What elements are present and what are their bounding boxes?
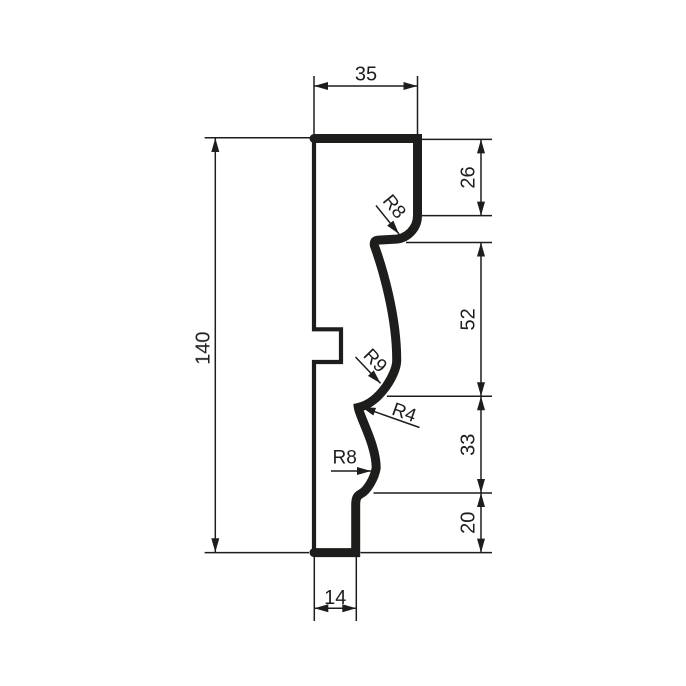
svg-text:14: 14 [324, 587, 346, 609]
svg-text:140: 140 [193, 332, 215, 365]
svg-text:R8: R8 [333, 447, 357, 468]
svg-text:R9: R9 [359, 345, 391, 377]
svg-text:35: 35 [355, 64, 377, 86]
svg-text:R8: R8 [378, 191, 410, 223]
svg-text:R4: R4 [389, 399, 419, 427]
svg-text:26: 26 [458, 166, 480, 188]
svg-text:33: 33 [458, 434, 480, 456]
svg-text:20: 20 [458, 512, 480, 534]
svg-text:52: 52 [458, 308, 480, 330]
